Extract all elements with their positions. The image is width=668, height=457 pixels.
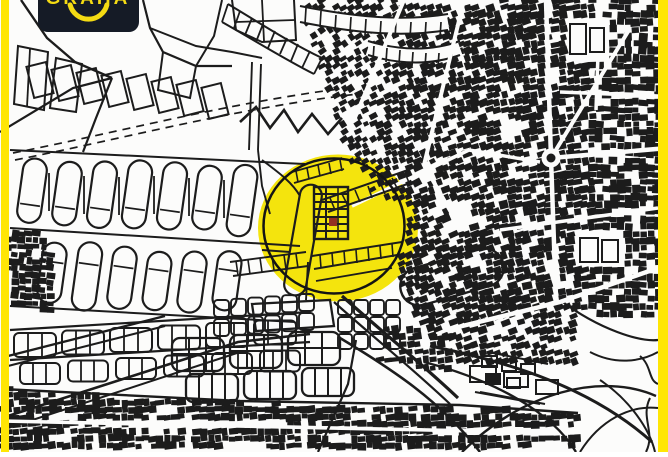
svg-text:GRAHA: GRAHA xyxy=(46,0,131,9)
